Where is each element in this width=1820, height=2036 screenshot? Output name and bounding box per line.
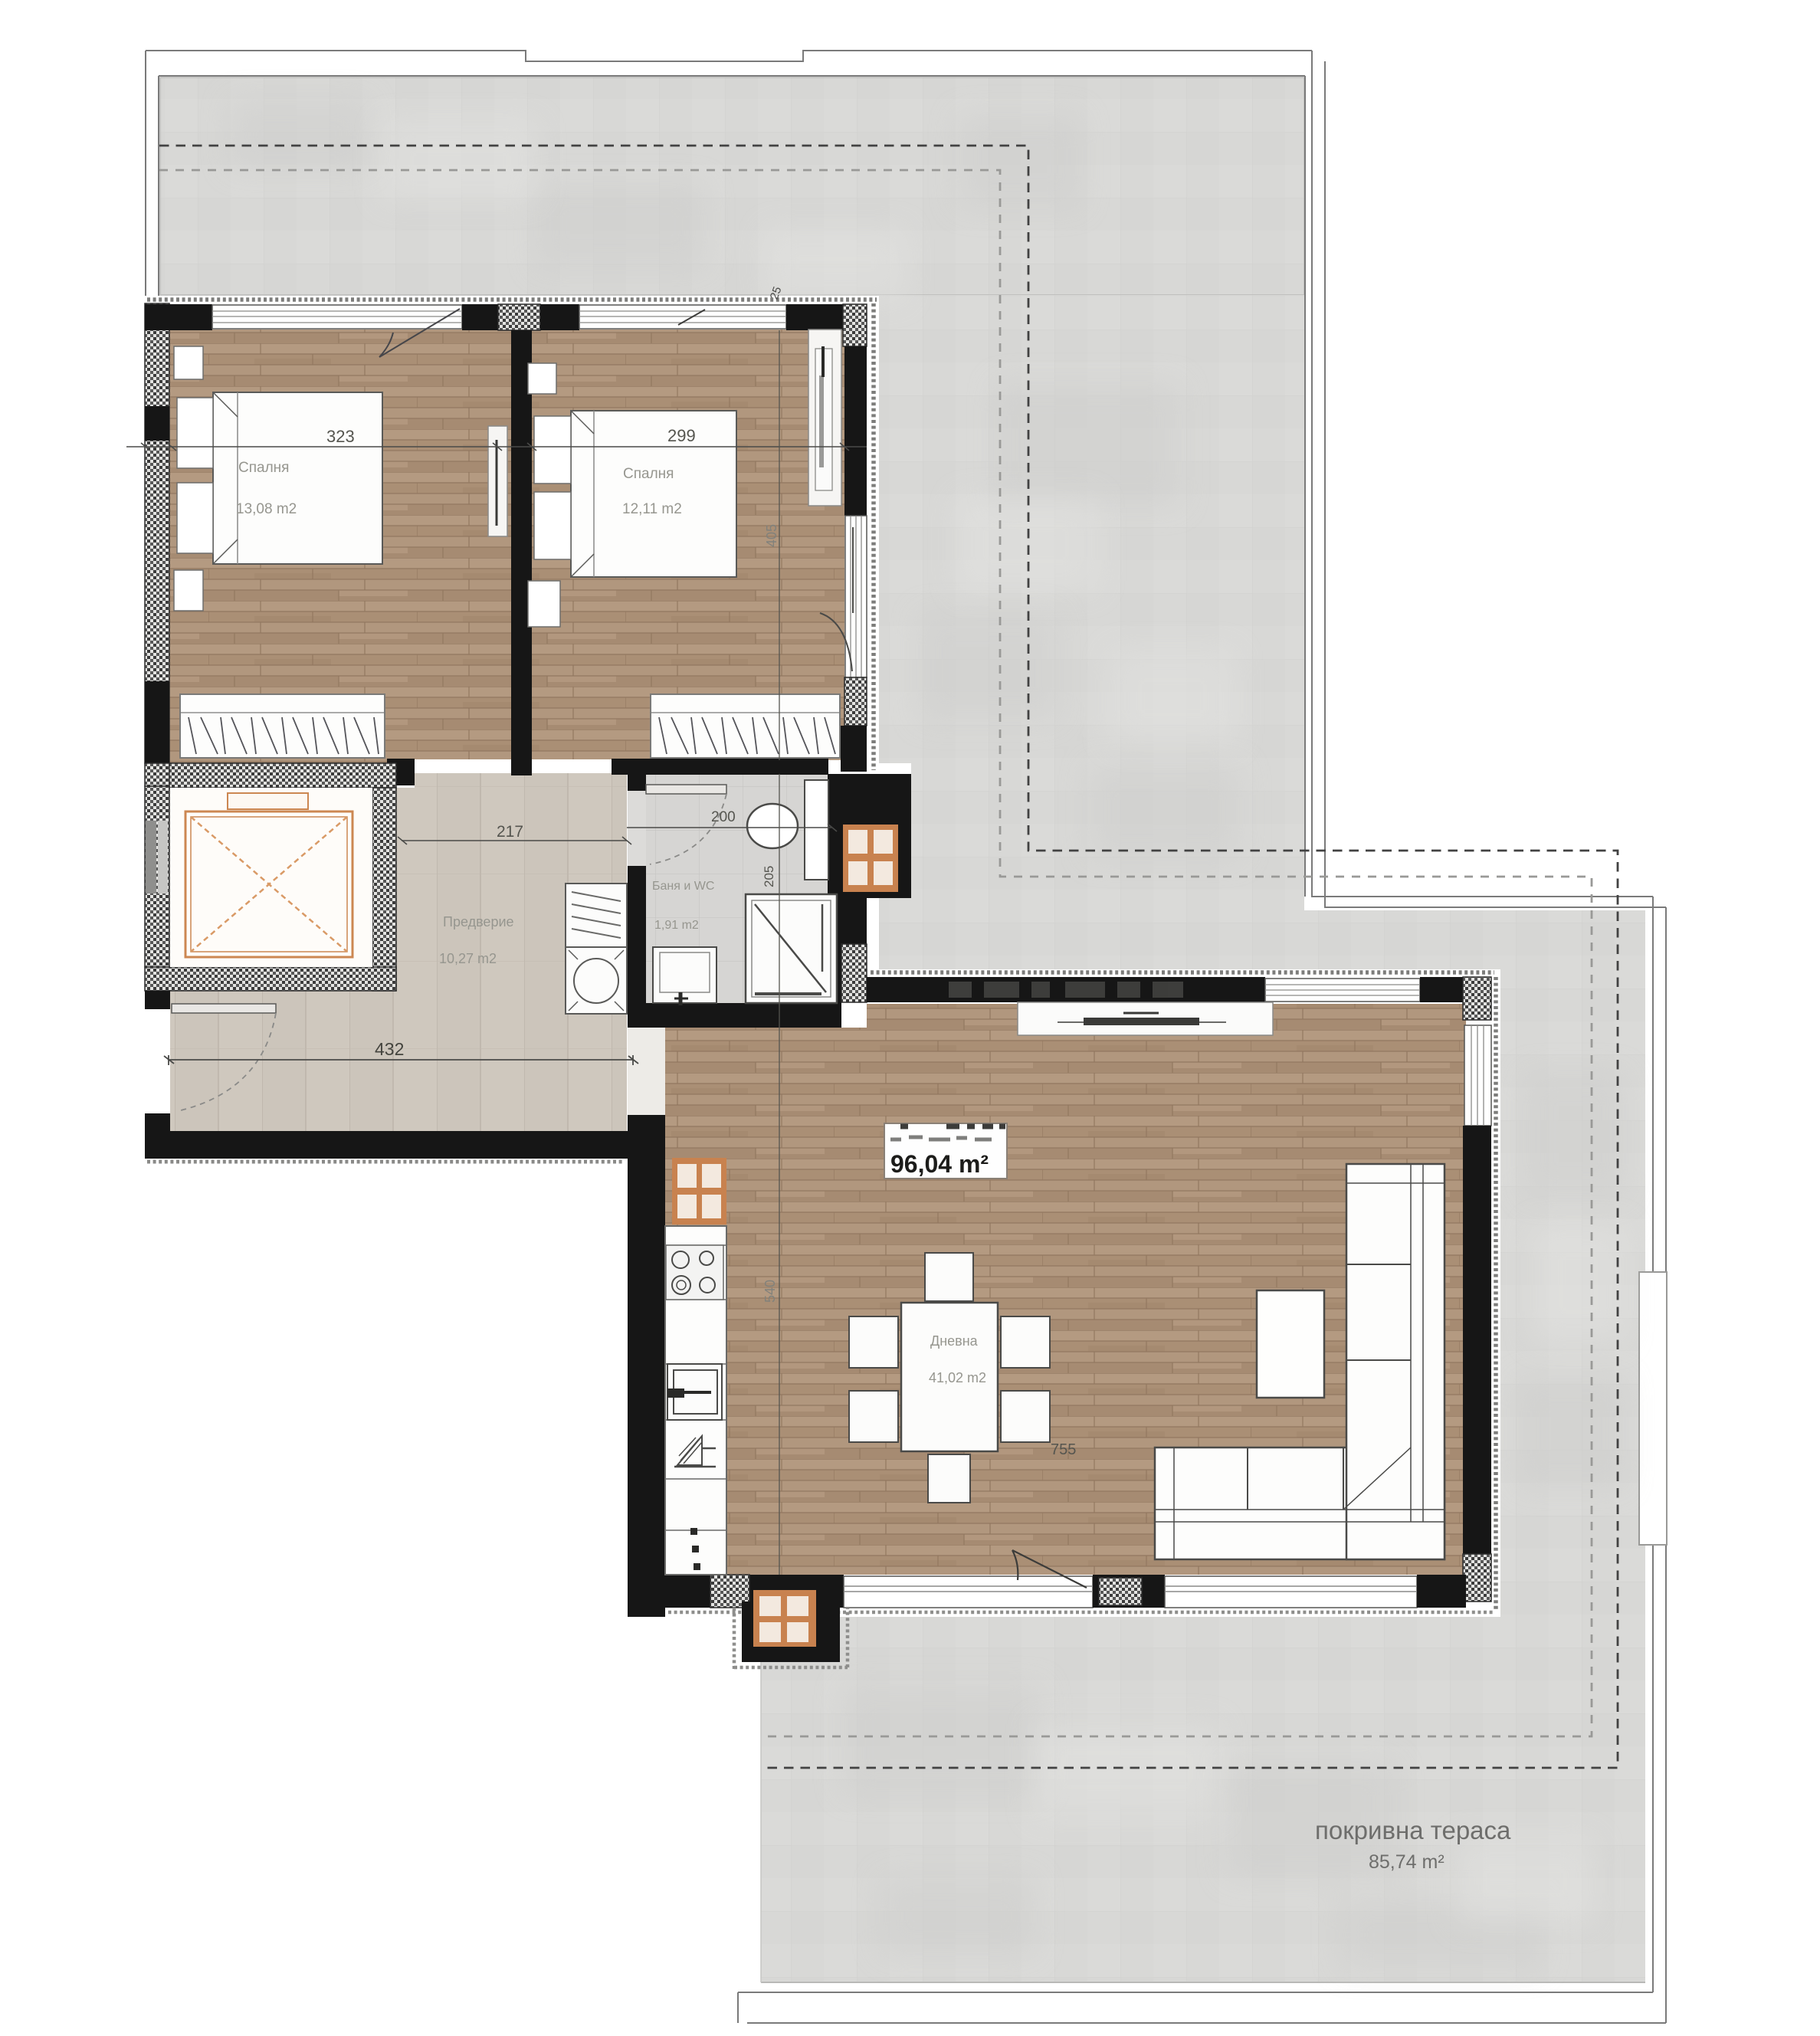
svg-text:432: 432 (375, 1039, 404, 1059)
svg-text:12,11 m2: 12,11 m2 (622, 501, 682, 517)
svg-text:Спалня: Спалня (623, 466, 674, 482)
svg-text:13,08 m2: 13,08 m2 (236, 501, 297, 517)
svg-text:405: 405 (764, 524, 779, 547)
svg-text:Баня и WC: Баня и WC (652, 880, 714, 893)
svg-text:205: 205 (762, 866, 776, 887)
svg-text:Дневна: Дневна (930, 1333, 979, 1349)
svg-text:Спалня: Спалня (238, 460, 289, 476)
svg-text:Предверие: Предверие (443, 914, 514, 929)
svg-text:299: 299 (667, 426, 696, 445)
svg-text:1,91 m2: 1,91 m2 (654, 919, 699, 932)
svg-text:85,74 m²: 85,74 m² (1369, 1851, 1445, 1873)
svg-text:10,27 m2: 10,27 m2 (439, 951, 497, 966)
svg-text:покривна тераса: покривна тераса (1315, 1816, 1511, 1844)
svg-text:323: 323 (326, 427, 355, 446)
svg-text:96,04 m²: 96,04 m² (890, 1150, 989, 1178)
svg-text:200: 200 (711, 809, 736, 825)
svg-text:217: 217 (497, 823, 523, 841)
svg-text:540: 540 (762, 1280, 778, 1303)
svg-text:41,02 m2: 41,02 m2 (929, 1370, 986, 1385)
svg-text:755: 755 (1051, 1441, 1076, 1458)
